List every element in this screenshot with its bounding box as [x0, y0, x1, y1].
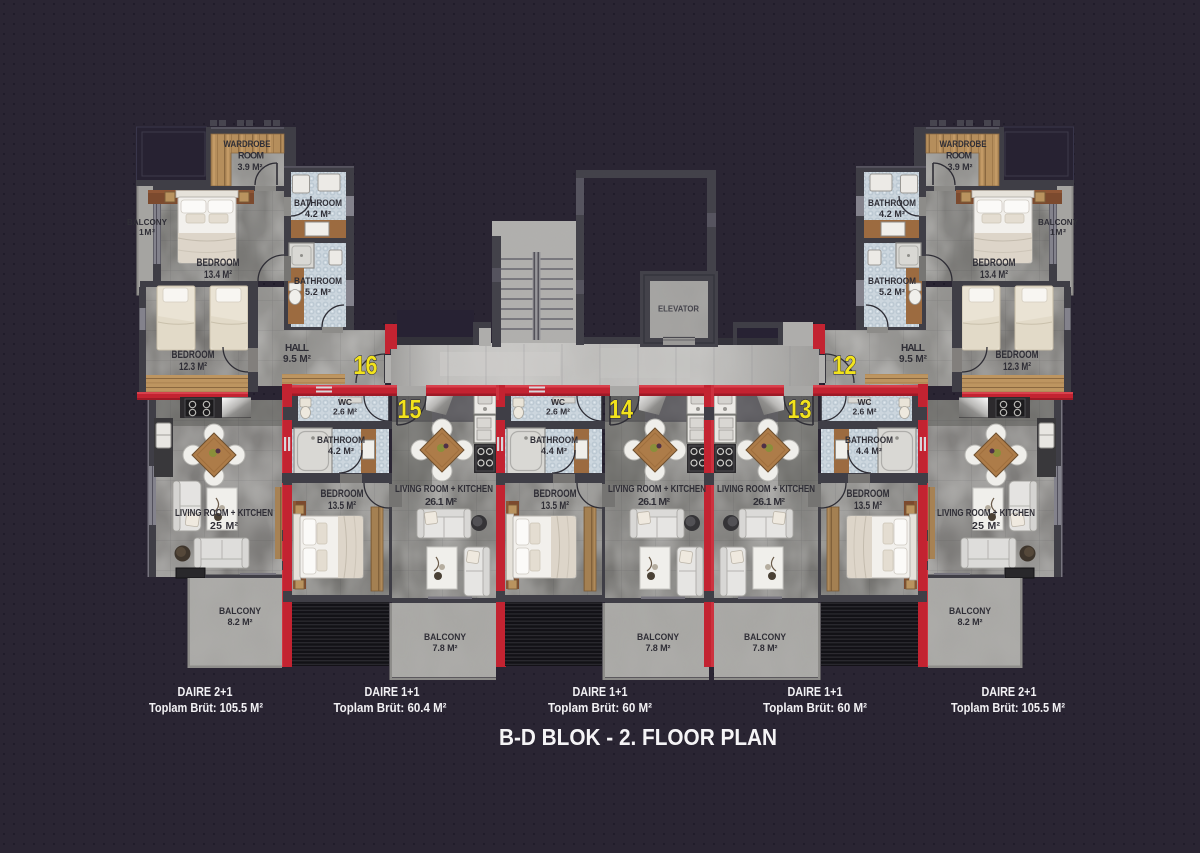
svg-text:8.2 M²: 8.2 M²: [228, 617, 253, 627]
svg-text:4.2 M²: 4.2 M²: [305, 209, 331, 219]
svg-text:BALCONY: BALCONY: [744, 632, 786, 642]
svg-text:BATHROOM: BATHROOM: [868, 198, 916, 208]
svg-text:2.6 M²: 2.6 M²: [853, 407, 877, 417]
svg-text:BEDROOM: BEDROOM: [847, 488, 890, 500]
svg-text:LIVING ROOM + KITCHEN: LIVING ROOM + KITCHEN: [395, 483, 493, 495]
svg-text:26.1 M²: 26.1 M²: [638, 496, 671, 508]
svg-text:5.2 M²: 5.2 M²: [305, 287, 331, 297]
svg-text:HALL: HALL: [285, 343, 309, 354]
svg-text:5.2 M²: 5.2 M²: [879, 287, 905, 297]
svg-text:16: 16: [354, 350, 378, 380]
svg-text:1M²: 1M²: [1050, 227, 1066, 237]
svg-text:13.5 M²: 13.5 M²: [541, 500, 569, 512]
svg-text:WC: WC: [551, 397, 565, 407]
svg-text:LIVING ROOM + KITCHEN: LIVING ROOM + KITCHEN: [937, 507, 1035, 519]
svg-text:13.4 M²: 13.4 M²: [204, 269, 232, 281]
svg-text:Toplam Brüt: 60.4 M²: Toplam Brüt: 60.4 M²: [334, 700, 448, 715]
svg-text:DAIRE 1+1: DAIRE 1+1: [573, 684, 628, 699]
svg-text:13.4 M²: 13.4 M²: [980, 269, 1008, 281]
svg-text:26.1 M²: 26.1 M²: [753, 496, 786, 508]
svg-text:Toplam Brüt: 105.5 M²: Toplam Brüt: 105.5 M²: [951, 700, 1066, 715]
svg-text:ROOM: ROOM: [946, 151, 972, 161]
svg-text:LIVING ROOM + KITCHEN: LIVING ROOM + KITCHEN: [608, 483, 706, 495]
svg-text:BALCONY: BALCONY: [127, 217, 167, 227]
svg-text:WC: WC: [858, 397, 872, 407]
svg-text:26.1 M²: 26.1 M²: [425, 496, 458, 508]
svg-text:BATHROOM: BATHROOM: [530, 435, 578, 445]
svg-text:Toplam Brüt: 60 M²: Toplam Brüt: 60 M²: [548, 700, 653, 715]
svg-text:BATHROOM: BATHROOM: [294, 198, 342, 208]
svg-text:WC: WC: [338, 397, 352, 407]
svg-text:3.9 M²: 3.9 M²: [238, 162, 263, 172]
svg-text:LIVING ROOM + KITCHEN: LIVING ROOM + KITCHEN: [175, 507, 273, 519]
svg-text:WARDROBE: WARDROBE: [940, 139, 987, 149]
svg-text:7.8 M²: 7.8 M²: [646, 643, 671, 653]
svg-text:Toplam Brüt: 105.5 M²: Toplam Brüt: 105.5 M²: [149, 700, 264, 715]
svg-text:BEDROOM: BEDROOM: [172, 349, 215, 361]
svg-text:BEDROOM: BEDROOM: [197, 257, 240, 269]
svg-text:B-D BLOK - 2. FLOOR PLAN: B-D BLOK - 2. FLOOR PLAN: [499, 724, 777, 750]
svg-text:DAIRE 2+1: DAIRE 2+1: [178, 684, 233, 699]
svg-text:BATHROOM: BATHROOM: [868, 276, 916, 286]
svg-text:15: 15: [398, 394, 422, 424]
svg-text:2.6 M²: 2.6 M²: [333, 407, 357, 417]
svg-text:DAIRE 2+1: DAIRE 2+1: [982, 684, 1037, 699]
svg-text:8.2 M²: 8.2 M²: [958, 617, 983, 627]
svg-text:HALL: HALL: [901, 343, 925, 354]
svg-text:4.2 M²: 4.2 M²: [328, 446, 354, 456]
svg-text:13: 13: [788, 394, 812, 424]
svg-text:Toplam Brüt: 60 M²: Toplam Brüt: 60 M²: [763, 700, 868, 715]
svg-text:9.5 M²: 9.5 M²: [899, 354, 928, 365]
svg-text:ELEVATOR: ELEVATOR: [658, 304, 699, 314]
svg-text:BEDROOM: BEDROOM: [996, 349, 1039, 361]
svg-text:BATHROOM: BATHROOM: [294, 276, 342, 286]
svg-text:13.5 M²: 13.5 M²: [854, 500, 882, 512]
svg-text:DAIRE 1+1: DAIRE 1+1: [365, 684, 420, 699]
svg-text:12: 12: [833, 350, 857, 380]
svg-text:BEDROOM: BEDROOM: [321, 488, 364, 500]
svg-text:1M²: 1M²: [139, 227, 155, 237]
svg-text:12.3 M²: 12.3 M²: [1003, 361, 1031, 373]
svg-text:BEDROOM: BEDROOM: [973, 257, 1016, 269]
svg-text:BALCONY: BALCONY: [949, 606, 991, 616]
svg-text:BALCONY: BALCONY: [219, 606, 261, 616]
svg-text:ROOM: ROOM: [238, 151, 264, 161]
svg-text:7.8 M²: 7.8 M²: [753, 643, 778, 653]
svg-text:LIVING ROOM + KITCHEN: LIVING ROOM + KITCHEN: [717, 483, 815, 495]
svg-text:BATHROOM: BATHROOM: [845, 435, 893, 445]
svg-text:14: 14: [609, 394, 633, 424]
svg-text:9.5 M²: 9.5 M²: [283, 354, 312, 365]
svg-text:4.4 M²: 4.4 M²: [541, 446, 567, 456]
svg-text:BALCONY: BALCONY: [1038, 217, 1078, 227]
svg-text:12.3 M²: 12.3 M²: [179, 361, 207, 373]
svg-text:DAIRE 1+1: DAIRE 1+1: [788, 684, 843, 699]
svg-text:BALCONY: BALCONY: [637, 632, 679, 642]
svg-text:BALCONY: BALCONY: [424, 632, 466, 642]
svg-text:7.8 M²: 7.8 M²: [433, 643, 458, 653]
svg-text:2.6 M²: 2.6 M²: [546, 407, 570, 417]
svg-text:4.4 M²: 4.4 M²: [856, 446, 882, 456]
svg-text:25 M²: 25 M²: [972, 520, 1001, 532]
svg-text:BEDROOM: BEDROOM: [534, 488, 577, 500]
svg-text:4.2 M²: 4.2 M²: [879, 209, 905, 219]
svg-text:WARDROBE: WARDROBE: [224, 139, 271, 149]
svg-text:3.9 M²: 3.9 M²: [948, 162, 973, 172]
svg-text:13.5 M²: 13.5 M²: [328, 500, 356, 512]
svg-text:25 M²: 25 M²: [210, 520, 239, 532]
svg-text:BATHROOM: BATHROOM: [317, 435, 365, 445]
